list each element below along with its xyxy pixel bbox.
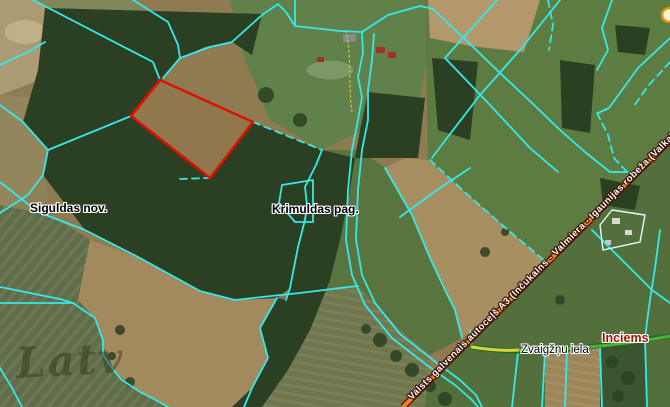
parish-label: Krimuldas pag. — [272, 202, 359, 216]
watermark: Latv — [15, 333, 126, 388]
village-label: Inciems — [602, 331, 649, 345]
municipality-label: Siguldas nov. — [30, 201, 107, 215]
street-label: Zvaigžņu iela — [521, 344, 589, 356]
road-badge-icon — [662, 8, 670, 22]
parcel-boundary-line — [180, 178, 209, 179]
map-canvas[interactable]: Siguldas nov. Krimuldas pag. Inciems Zva… — [0, 0, 670, 407]
